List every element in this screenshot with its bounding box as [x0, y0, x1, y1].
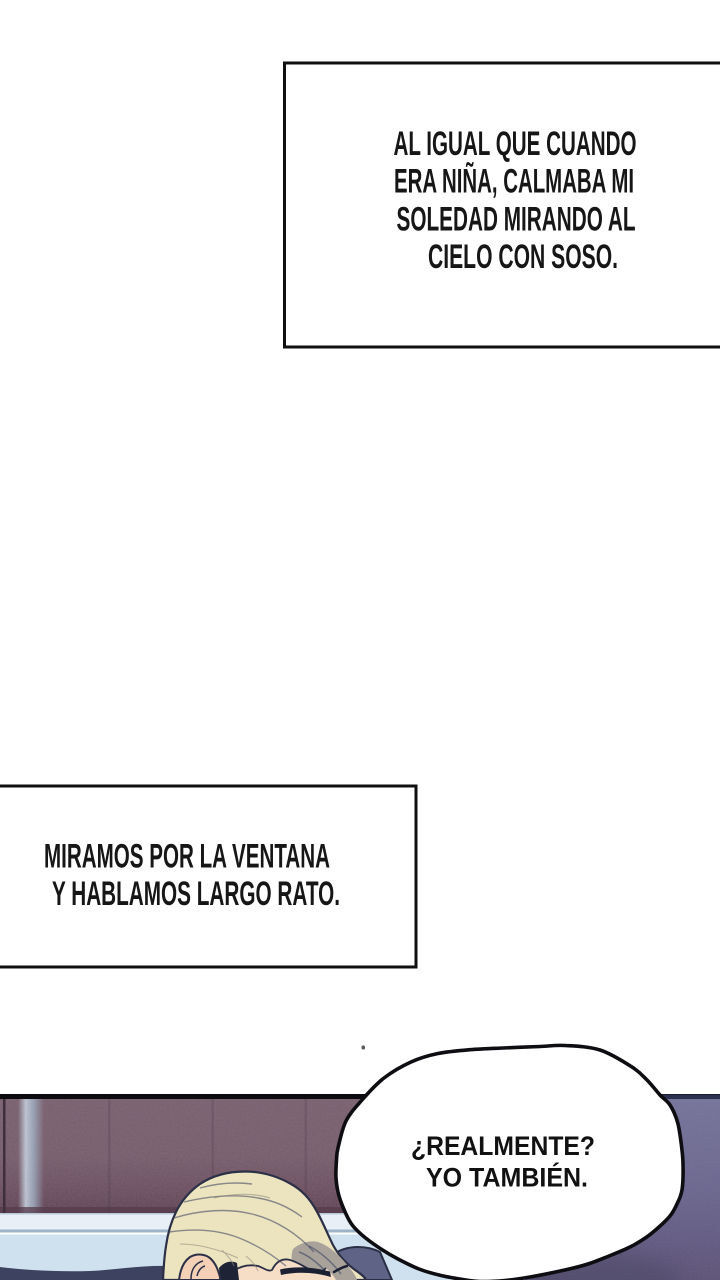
svg-text:AL IGUAL QUE CUANDO: AL IGUAL QUE CUANDO: [394, 125, 637, 163]
svg-text:CIELO CON SOSO.: CIELO CON SOSO.: [428, 238, 618, 276]
svg-text:MIRAMOS POR LA VENTANA: MIRAMOS POR LA VENTANA: [44, 838, 330, 876]
svg-text:SOLEDAD MIRANDO AL: SOLEDAD MIRANDO AL: [397, 201, 636, 239]
svg-text:ERA NIÑA, CALMABA MI: ERA NIÑA, CALMABA MI: [394, 162, 634, 201]
svg-text:¿REALMENTE?: ¿REALMENTE?: [411, 1131, 595, 1161]
svg-text:Y HABLAMOS LARGO RATO.: Y HABLAMOS LARGO RATO.: [52, 875, 340, 913]
svg-text:YO TAMBIÉN.: YO TAMBIÉN.: [426, 1162, 588, 1193]
